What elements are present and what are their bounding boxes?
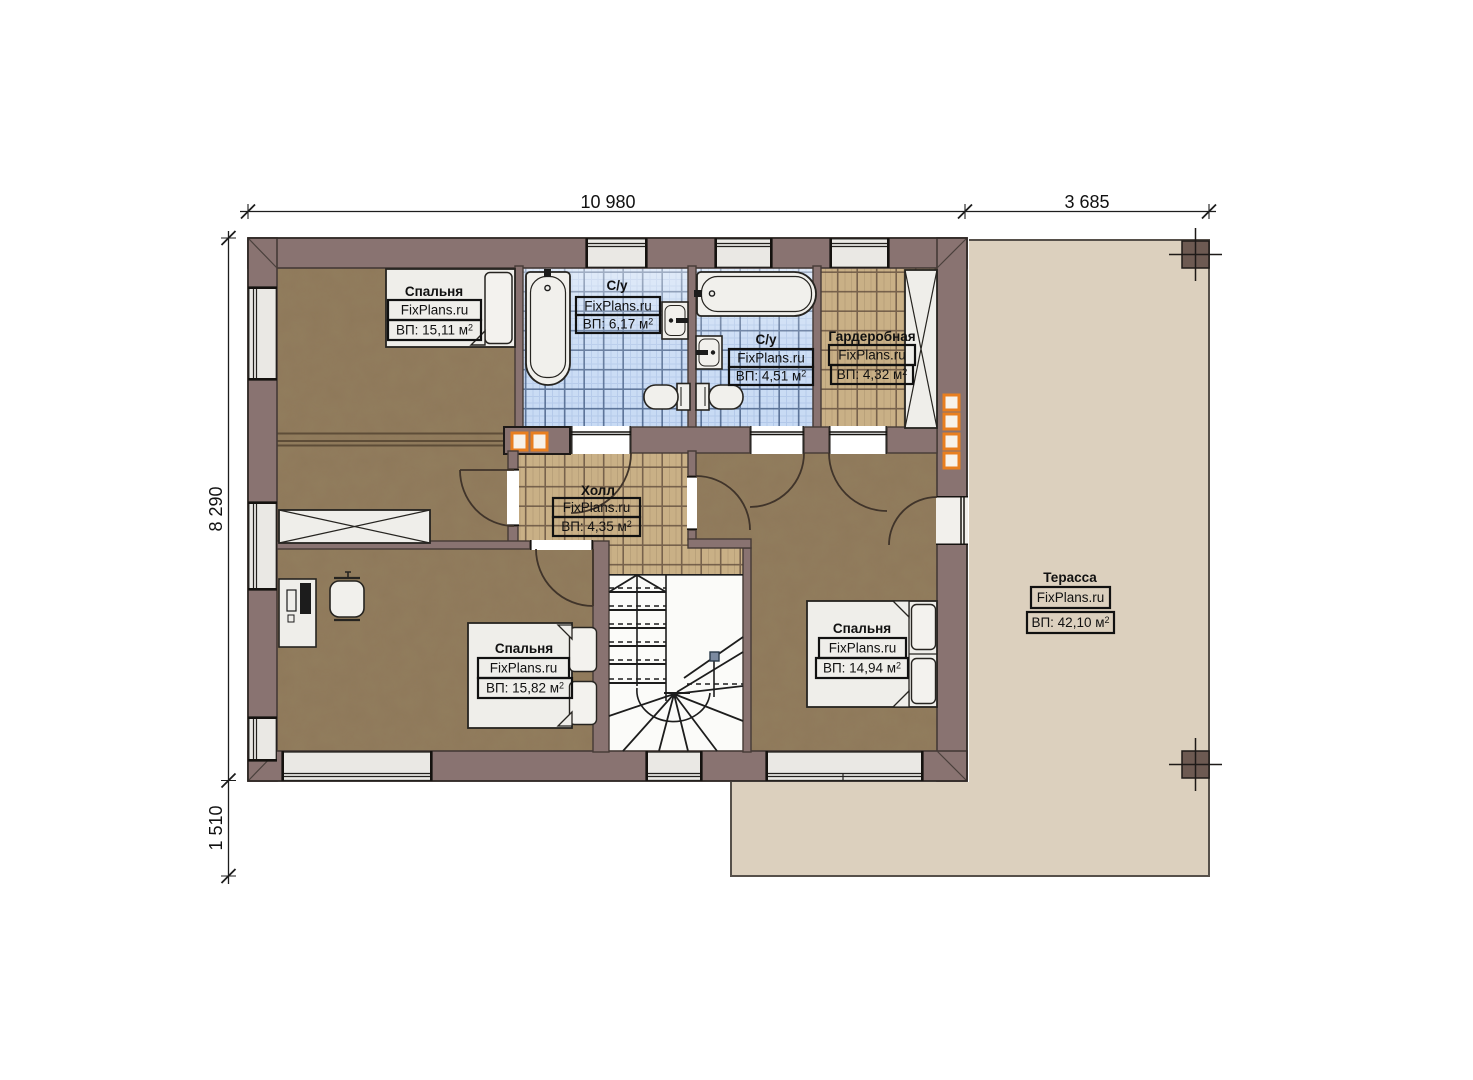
svg-text:FixPlans.ru: FixPlans.ru (1037, 590, 1105, 605)
svg-text:1 510: 1 510 (206, 805, 226, 850)
svg-text:ВП: 15,82 м2: ВП: 15,82 м2 (486, 681, 564, 696)
svg-text:FixPlans.ru: FixPlans.ru (838, 348, 906, 363)
svg-text:ВП: 15,11 м2: ВП: 15,11 м2 (396, 323, 473, 338)
svg-text:ВП: 42,10 м2: ВП: 42,10 м2 (1031, 615, 1109, 630)
svg-text:Терасса: Терасса (1043, 570, 1097, 585)
svg-text:ВП: 4,51 м2: ВП: 4,51 м2 (736, 369, 807, 384)
svg-text:FixPlans.ru: FixPlans.ru (584, 299, 652, 314)
svg-text:Гардеробная: Гардеробная (828, 329, 915, 344)
svg-text:Спальня: Спальня (405, 284, 463, 299)
svg-text:3 685: 3 685 (1064, 192, 1109, 212)
svg-text:ВП: 4,35 м2: ВП: 4,35 м2 (561, 519, 632, 534)
svg-text:ВП: 14,94 м2: ВП: 14,94 м2 (823, 661, 901, 676)
svg-text:Холл: Холл (581, 483, 615, 498)
svg-text:FixPlans.ru: FixPlans.ru (563, 500, 631, 515)
svg-text:Спальня: Спальня (833, 621, 891, 636)
svg-text:ВП: 6,17 м2: ВП: 6,17 м2 (583, 317, 654, 332)
svg-text:FixPlans.ru: FixPlans.ru (737, 351, 805, 366)
svg-text:FixPlans.ru: FixPlans.ru (490, 661, 558, 676)
svg-text:FixPlans.ru: FixPlans.ru (829, 641, 897, 656)
svg-text:С/у: С/у (755, 332, 777, 347)
svg-text:8 290: 8 290 (206, 486, 226, 531)
svg-text:10 980: 10 980 (580, 192, 635, 212)
svg-text:С/у: С/у (606, 278, 628, 293)
svg-text:ВП: 4,32 м2: ВП: 4,32 м2 (837, 367, 908, 382)
svg-text:Спальня: Спальня (495, 641, 553, 656)
svg-text:FixPlans.ru: FixPlans.ru (401, 303, 469, 318)
